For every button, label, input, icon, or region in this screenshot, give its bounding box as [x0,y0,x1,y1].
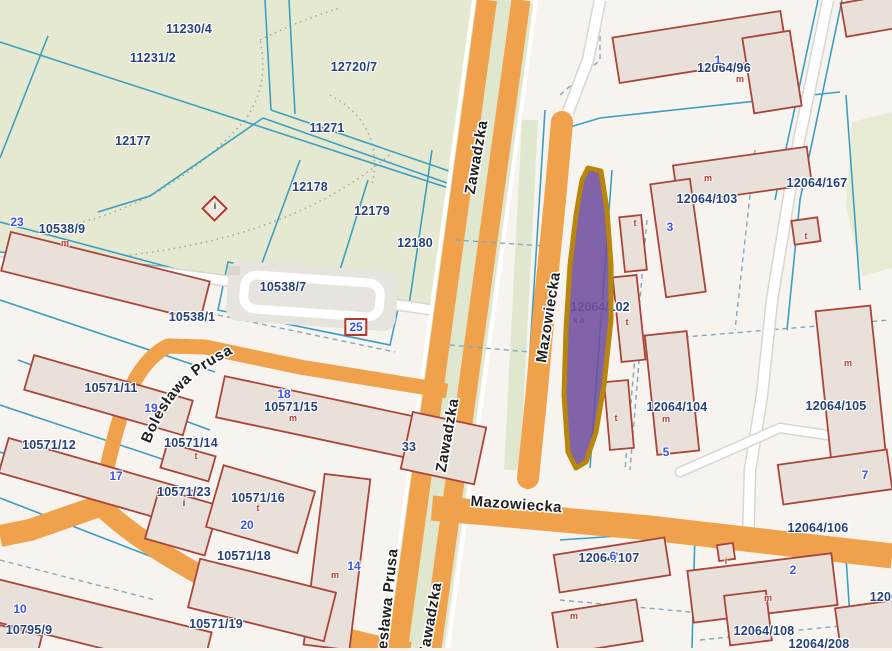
map-canvas[interactable]: 12064/102 k n Zawadzka Zawadzka Zawadzka… [0,0,892,648]
parking-detail [228,266,240,275]
map-base-layer: 12064/102 k n Zawadzka Zawadzka Zawadzka… [0,0,892,648]
info-point-glyph: i [213,201,217,211]
parking-lot [225,260,399,332]
